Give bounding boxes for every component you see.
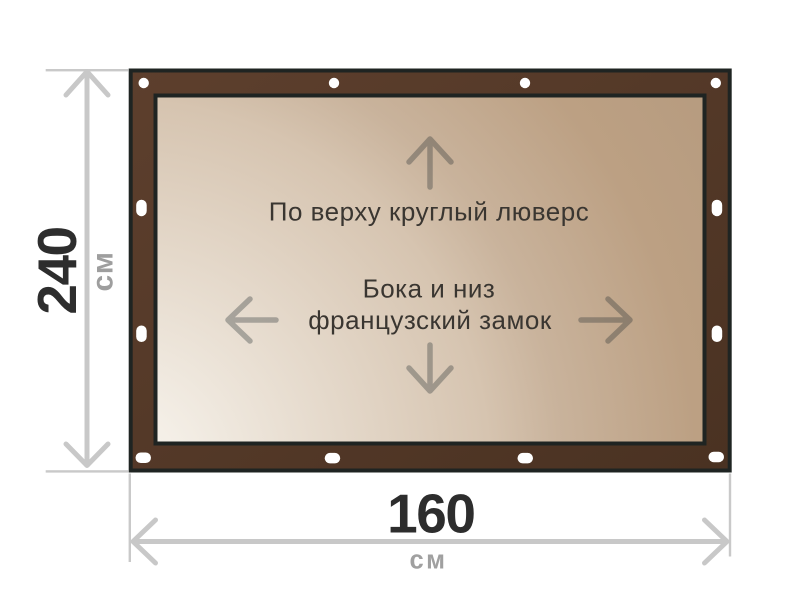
svg-text:240: 240 [26, 227, 88, 314]
svg-text:По верху круглый люверс: По верху круглый люверс [269, 197, 589, 227]
svg-text:см: см [87, 252, 120, 292]
svg-text:французский замок: французский замок [308, 305, 552, 335]
svg-text:см: см [409, 546, 447, 574]
svg-text:160: 160 [387, 483, 474, 545]
svg-text:Бока и низ: Бока и низ [363, 274, 496, 304]
